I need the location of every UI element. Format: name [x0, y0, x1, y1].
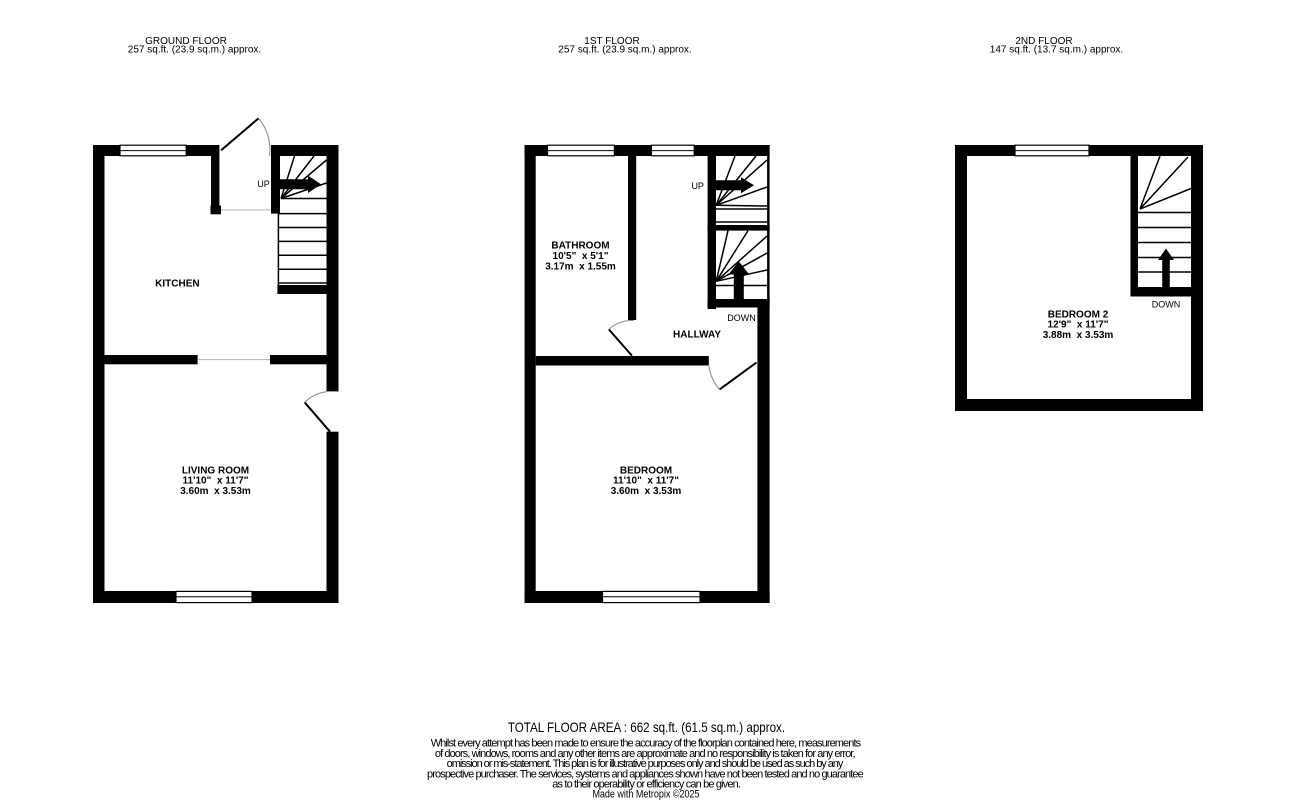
svg-text:257 sq.ft. (23.9 sq.m.) approx: 257 sq.ft. (23.9 sq.m.) approx. [558, 45, 691, 56]
svg-text:HALLWAY: HALLWAY [673, 330, 721, 341]
svg-text:147 sq.ft. (13.7 sq.m.) approx: 147 sq.ft. (13.7 sq.m.) approx. [990, 45, 1123, 56]
svg-text:KITCHEN: KITCHEN [155, 278, 199, 289]
svg-text:DOWN: DOWN [1152, 299, 1181, 309]
svg-text:TOTAL FLOOR AREA : 662 sq.ft.: TOTAL FLOOR AREA : 662 sq.ft. (61.5 sq.m… [508, 719, 785, 735]
svg-text:DOWN: DOWN [727, 313, 756, 323]
svg-text:UP: UP [257, 179, 270, 189]
svg-text:3.60m x 3.53m: 3.60m x 3.53m [611, 486, 682, 497]
svg-text:3.60m x 3.53m: 3.60m x 3.53m [180, 486, 251, 497]
svg-text:Made with Metropix ©2025: Made with Metropix ©2025 [592, 788, 699, 800]
svg-text:10'5" x 5'1": 10'5" x 5'1" [553, 251, 609, 262]
svg-text:3.88m x 3.53m: 3.88m x 3.53m [1043, 330, 1114, 341]
svg-text:257 sq.ft. (23.9 sq.m.) approx: 257 sq.ft. (23.9 sq.m.) approx. [128, 45, 261, 56]
svg-text:UP: UP [691, 181, 704, 191]
svg-text:3.17m x 1.55m: 3.17m x 1.55m [545, 261, 616, 272]
